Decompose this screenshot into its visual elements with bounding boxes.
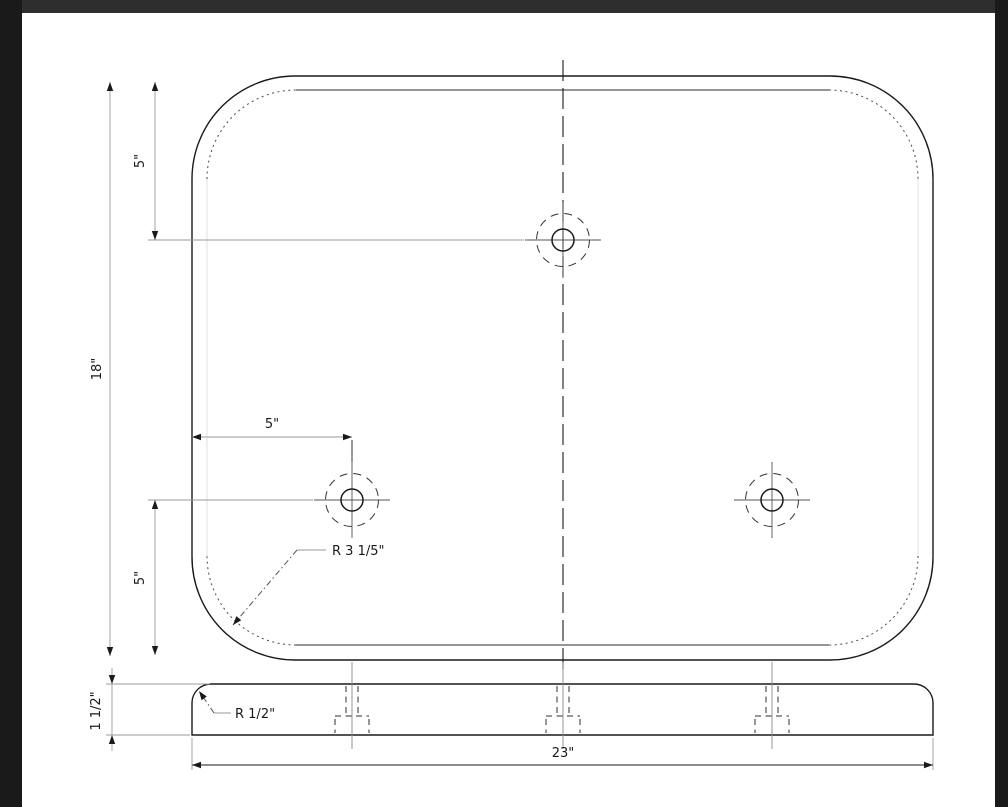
window-frame-top-strip xyxy=(22,0,995,13)
thickness-label[interactable]: 1 1/2" xyxy=(89,691,104,730)
dim-top-hole-offset-label[interactable]: 5" xyxy=(133,154,148,168)
dim-bottom-hole-offset-label[interactable]: 5" xyxy=(133,571,148,585)
overall-width-label[interactable]: 23" xyxy=(552,746,575,761)
corner-radius-label[interactable]: R 3 1/5" xyxy=(332,544,384,559)
dim-overall-height-label[interactable]: 18" xyxy=(90,358,105,381)
edge-fillet-label[interactable]: R 1/2" xyxy=(235,707,275,722)
drawing-canvas[interactable] xyxy=(22,13,995,807)
dim-left-hole-offset-label[interactable]: 5" xyxy=(265,417,279,432)
